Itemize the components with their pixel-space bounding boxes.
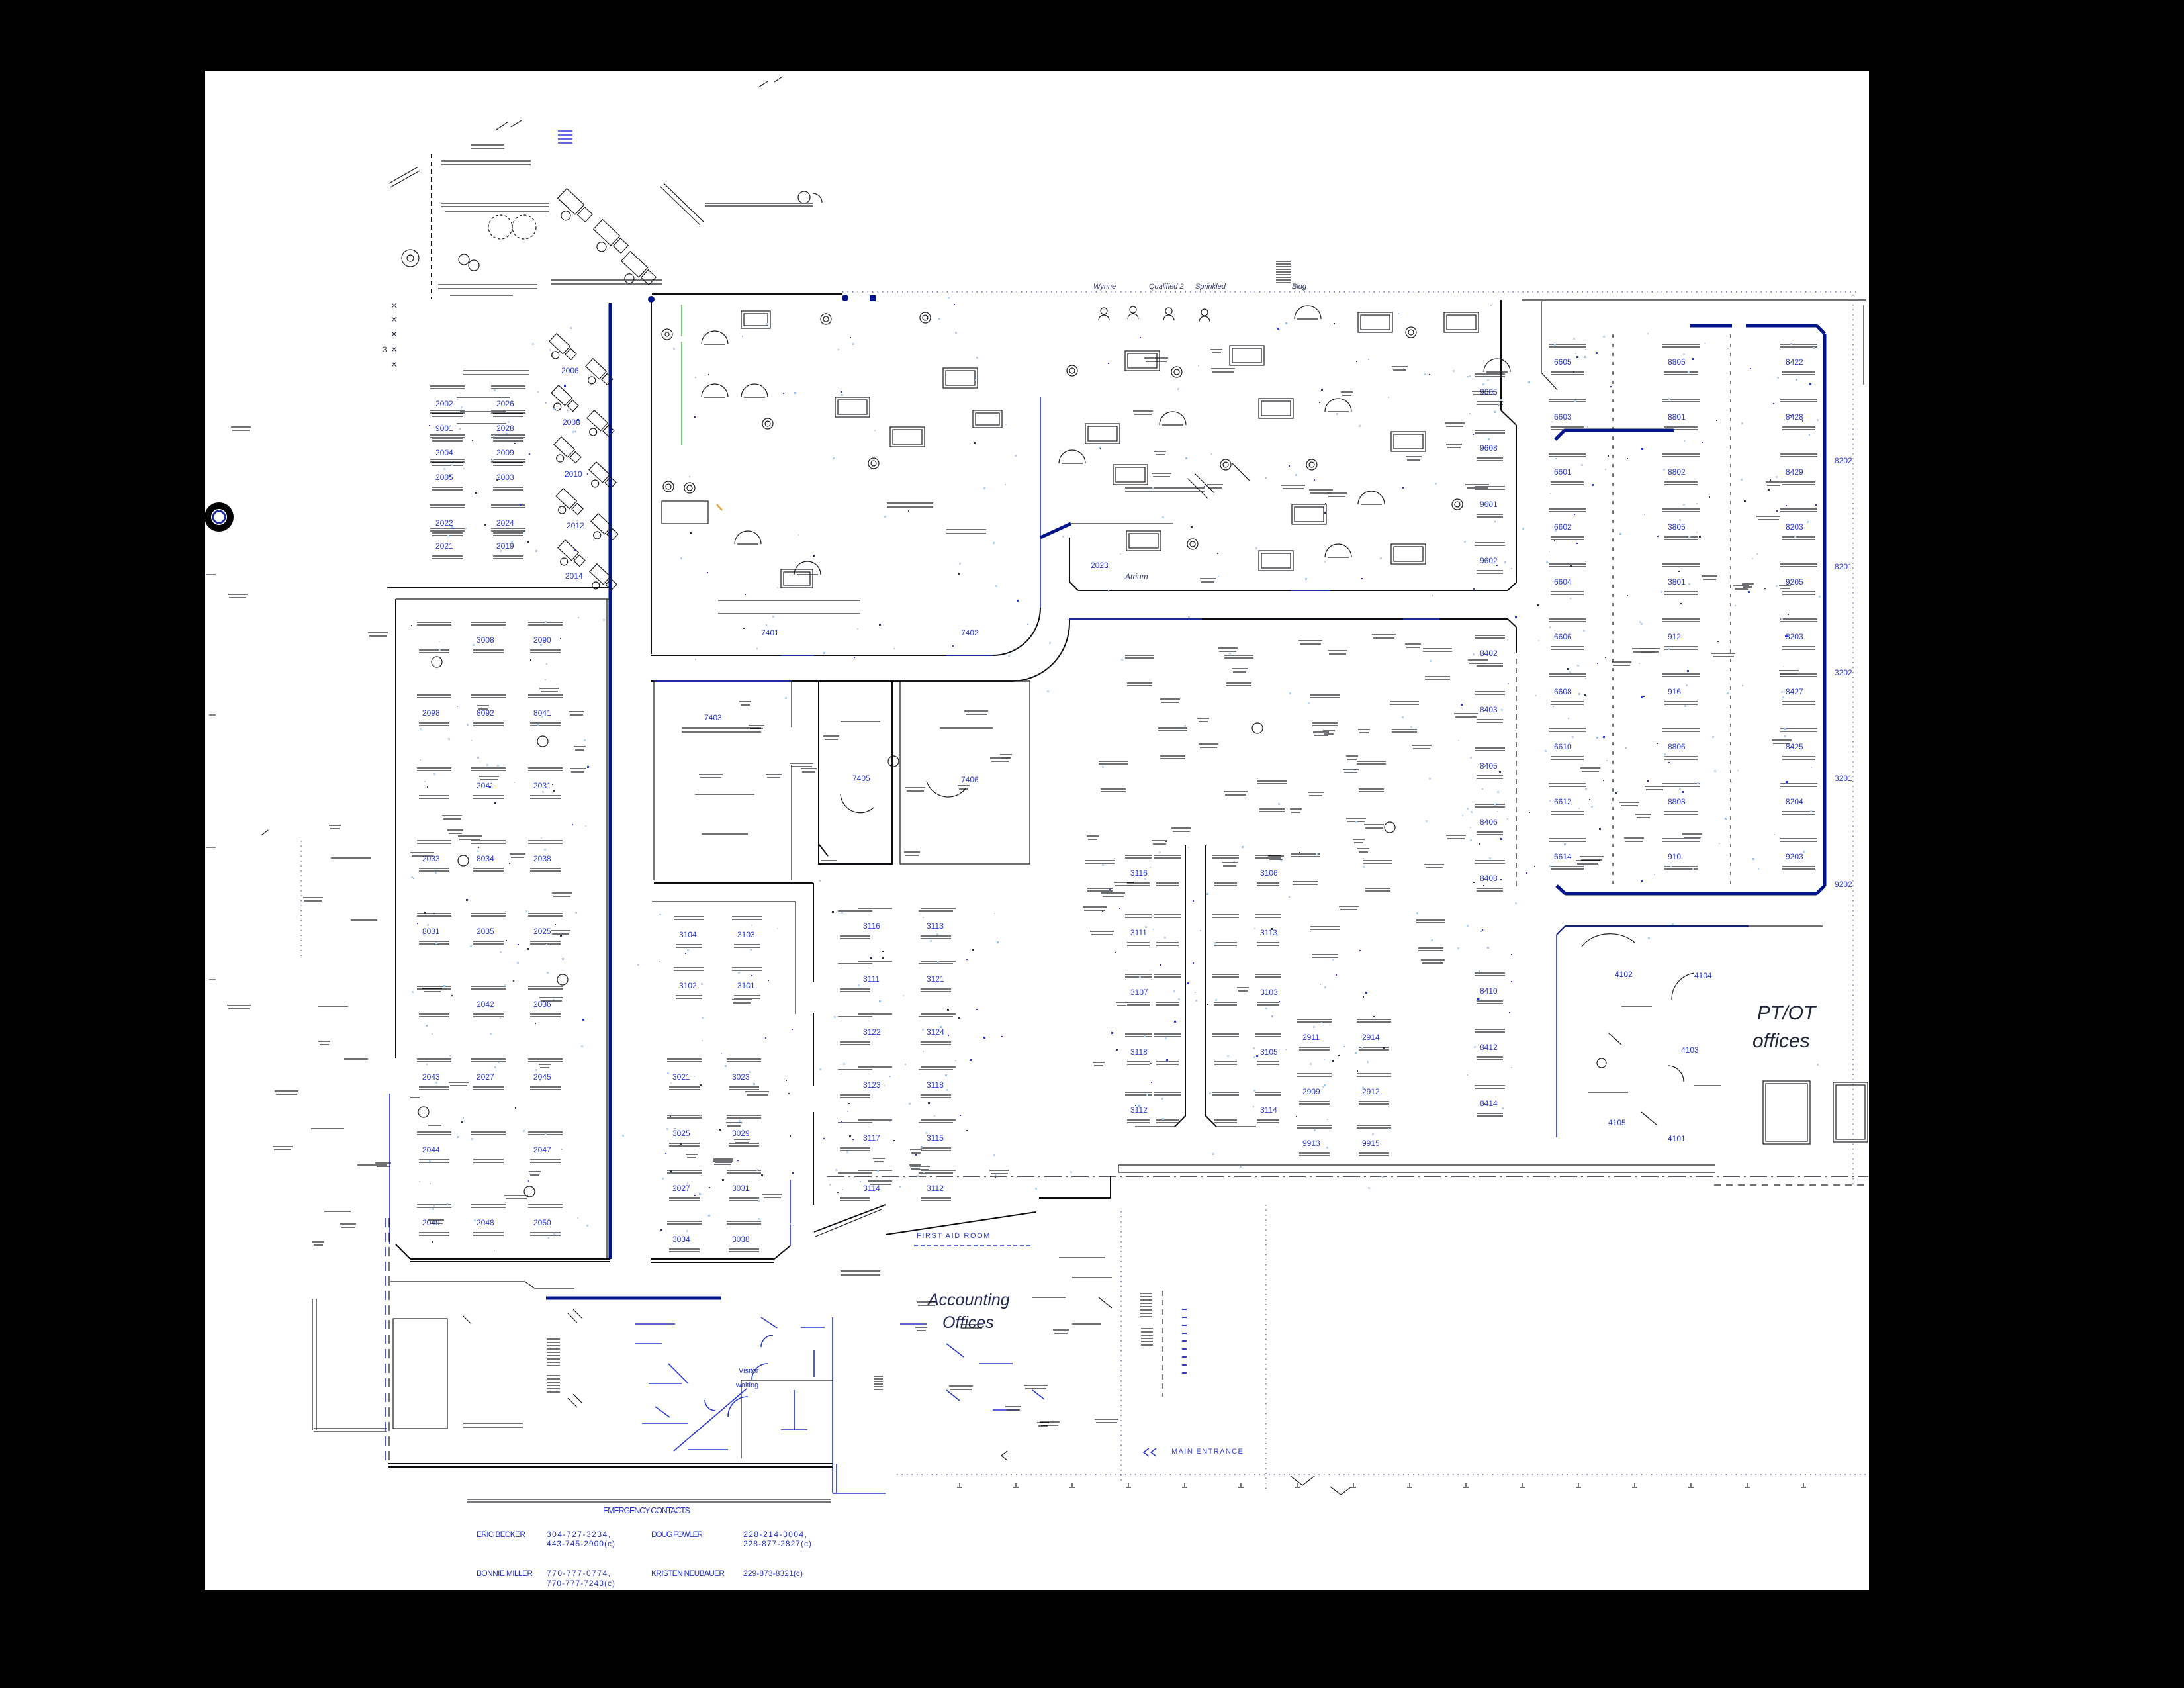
svg-text:FIRST AID ROOM: FIRST AID ROOM xyxy=(917,1232,991,1240)
svg-text:EMERGENCY CONTACTS: EMERGENCY CONTACTS xyxy=(603,1506,690,1515)
svg-text:443-745-2900(c): 443-745-2900(c) xyxy=(547,1539,615,1548)
svg-text:2004: 2004 xyxy=(435,448,453,457)
svg-text:3021: 3021 xyxy=(672,1072,690,1082)
svg-text:2912: 2912 xyxy=(1362,1087,1380,1096)
svg-text:3031: 3031 xyxy=(732,1184,750,1193)
svg-text:Sprinkled: Sprinkled xyxy=(1195,283,1226,291)
svg-text:3105: 3105 xyxy=(1260,1047,1278,1056)
svg-text:PT/OT: PT/OT xyxy=(1757,1002,1817,1024)
svg-text:ERIC BECKER: ERIC BECKER xyxy=(477,1530,525,1539)
svg-text:2043: 2043 xyxy=(422,1072,440,1082)
svg-text:3116: 3116 xyxy=(1130,868,1148,878)
svg-text:6608: 6608 xyxy=(1554,687,1572,696)
svg-text:3202: 3202 xyxy=(1835,668,1852,677)
svg-text:3112: 3112 xyxy=(1130,1105,1148,1115)
svg-text:6601: 6601 xyxy=(1554,467,1572,477)
svg-text:Visitor: Visitor xyxy=(739,1367,759,1375)
svg-text:3116: 3116 xyxy=(863,921,880,931)
svg-text:waiting: waiting xyxy=(735,1382,758,1389)
svg-text:2041: 2041 xyxy=(477,781,494,790)
svg-text:8406: 8406 xyxy=(1480,818,1498,827)
svg-text:8203: 8203 xyxy=(1786,522,1803,532)
svg-text:2038: 2038 xyxy=(533,854,551,863)
svg-text:3023: 3023 xyxy=(732,1072,750,1082)
svg-text:912: 912 xyxy=(1668,632,1681,641)
svg-text:3124: 3124 xyxy=(927,1027,944,1037)
svg-text:2035: 2035 xyxy=(477,927,494,936)
svg-text:8806: 8806 xyxy=(1668,742,1686,751)
svg-text:2090: 2090 xyxy=(533,635,551,645)
svg-text:2019: 2019 xyxy=(496,541,514,551)
svg-text:3008: 3008 xyxy=(477,635,494,645)
svg-text:3118: 3118 xyxy=(927,1080,944,1090)
svg-text:3121: 3121 xyxy=(927,974,944,984)
svg-text:3103: 3103 xyxy=(1260,988,1278,997)
svg-text:8805: 8805 xyxy=(1668,357,1686,367)
svg-text:9602: 9602 xyxy=(1480,556,1498,565)
svg-text:3117: 3117 xyxy=(863,1133,880,1143)
svg-text:2009: 2009 xyxy=(496,448,514,457)
svg-text:2048: 2048 xyxy=(477,1218,494,1227)
svg-text:3103: 3103 xyxy=(737,930,755,939)
svg-text:8801: 8801 xyxy=(1668,412,1686,422)
svg-text:9608: 9608 xyxy=(1480,444,1498,453)
svg-text:8201: 8201 xyxy=(1835,562,1852,571)
svg-text:3123: 3123 xyxy=(863,1080,881,1090)
svg-text:6612: 6612 xyxy=(1554,797,1572,806)
svg-text:9001: 9001 xyxy=(435,424,453,433)
svg-text:2047: 2047 xyxy=(533,1145,551,1154)
svg-text:3805: 3805 xyxy=(1668,522,1686,532)
svg-text:2024: 2024 xyxy=(496,518,514,528)
svg-text:304-727-3234,: 304-727-3234, xyxy=(547,1530,610,1539)
svg-text:3111: 3111 xyxy=(1130,928,1147,937)
svg-text:7403: 7403 xyxy=(704,713,722,722)
svg-text:8412: 8412 xyxy=(1480,1043,1498,1052)
svg-text:9605: 9605 xyxy=(1480,387,1498,397)
svg-text:3114: 3114 xyxy=(1260,1105,1277,1115)
svg-text:Wynne: Wynne xyxy=(1093,283,1116,291)
svg-text:2027: 2027 xyxy=(672,1184,690,1193)
svg-text:770-777-7243(c): 770-777-7243(c) xyxy=(547,1579,615,1588)
svg-text:2033: 2033 xyxy=(422,854,440,863)
svg-text:2003: 2003 xyxy=(496,473,514,482)
svg-text:8422: 8422 xyxy=(1786,357,1803,367)
svg-text:9915: 9915 xyxy=(1362,1139,1380,1148)
svg-text:3029: 3029 xyxy=(732,1129,750,1138)
svg-text:2023: 2023 xyxy=(1091,561,1109,570)
svg-text:2049: 2049 xyxy=(422,1218,440,1227)
svg-text:4101: 4101 xyxy=(1668,1134,1686,1143)
svg-text:7405: 7405 xyxy=(852,774,870,783)
svg-text:8808: 8808 xyxy=(1668,797,1686,806)
svg-text:6605: 6605 xyxy=(1554,357,1572,367)
svg-text:9202: 9202 xyxy=(1835,880,1852,889)
svg-text:228-214-3004,: 228-214-3004, xyxy=(743,1530,807,1539)
svg-text:6603: 6603 xyxy=(1554,412,1572,422)
svg-text:offices: offices xyxy=(1752,1030,1810,1052)
svg-text:6604: 6604 xyxy=(1554,577,1572,586)
svg-text:3113: 3113 xyxy=(927,921,944,931)
svg-text:2002: 2002 xyxy=(435,399,453,408)
svg-text:3112: 3112 xyxy=(927,1184,944,1193)
svg-text:8428: 8428 xyxy=(1786,412,1803,422)
svg-text:3102: 3102 xyxy=(679,981,697,990)
svg-text:2914: 2914 xyxy=(1362,1033,1380,1042)
svg-text:4105: 4105 xyxy=(1608,1118,1626,1127)
svg-text:8405: 8405 xyxy=(1480,761,1498,771)
svg-text:3113: 3113 xyxy=(1260,928,1277,937)
svg-text:3025: 3025 xyxy=(672,1129,690,1138)
svg-text:2031: 2031 xyxy=(533,781,551,790)
svg-text:2042: 2042 xyxy=(477,1000,494,1009)
svg-text:8202: 8202 xyxy=(1835,456,1852,465)
svg-text:8034: 8034 xyxy=(477,854,494,863)
svg-text:2027: 2027 xyxy=(477,1072,494,1082)
svg-text:8031: 8031 xyxy=(422,927,440,936)
svg-text:8429: 8429 xyxy=(1786,467,1803,477)
svg-text:2006: 2006 xyxy=(561,366,579,375)
svg-text:8403: 8403 xyxy=(1480,705,1498,714)
svg-text:2098: 2098 xyxy=(422,708,440,718)
svg-text:2021: 2021 xyxy=(435,541,453,551)
svg-text:8427: 8427 xyxy=(1786,687,1803,696)
svg-text:7406: 7406 xyxy=(961,775,979,784)
svg-text:BONNIE MILLER: BONNIE MILLER xyxy=(477,1569,533,1578)
svg-text:DOUG FOWLER: DOUG FOWLER xyxy=(651,1530,703,1539)
svg-text:6614: 6614 xyxy=(1554,852,1572,861)
svg-text:228-877-2827(c): 228-877-2827(c) xyxy=(743,1539,811,1548)
svg-text:6606: 6606 xyxy=(1554,632,1572,641)
svg-text:4102: 4102 xyxy=(1615,970,1633,979)
svg-text:2911: 2911 xyxy=(1302,1033,1320,1042)
svg-text:2045: 2045 xyxy=(533,1072,551,1082)
svg-text:8414: 8414 xyxy=(1480,1099,1498,1108)
svg-text:4104: 4104 xyxy=(1694,971,1712,980)
svg-text:2012: 2012 xyxy=(567,521,584,530)
svg-text:3122: 3122 xyxy=(863,1027,881,1037)
svg-text:3111: 3111 xyxy=(863,974,880,984)
svg-text:KRISTEN NEUBAUER: KRISTEN NEUBAUER xyxy=(651,1569,725,1578)
svg-text:2028: 2028 xyxy=(496,424,514,433)
svg-text:3201: 3201 xyxy=(1835,774,1852,783)
svg-text:9913: 9913 xyxy=(1302,1139,1320,1148)
svg-text:2014: 2014 xyxy=(565,571,583,581)
svg-text:2010: 2010 xyxy=(565,469,582,479)
svg-text:2050: 2050 xyxy=(533,1218,551,1227)
svg-text:8410: 8410 xyxy=(1480,986,1498,996)
svg-text:7401: 7401 xyxy=(761,628,779,637)
svg-text:6610: 6610 xyxy=(1554,742,1572,751)
svg-text:9601: 9601 xyxy=(1480,500,1498,509)
svg-text:229-873-8321(c): 229-873-8321(c) xyxy=(743,1569,803,1578)
svg-text:7402: 7402 xyxy=(961,628,979,637)
svg-text:8204: 8204 xyxy=(1786,797,1803,806)
svg-text:3034: 3034 xyxy=(672,1235,690,1244)
svg-text:770-777-0774,: 770-777-0774, xyxy=(547,1569,610,1578)
svg-text:MAIN ENTRANCE: MAIN ENTRANCE xyxy=(1171,1448,1244,1456)
svg-text:4103: 4103 xyxy=(1681,1045,1699,1055)
svg-text:2022: 2022 xyxy=(435,518,453,528)
svg-text:8408: 8408 xyxy=(1480,874,1498,883)
svg-text:910: 910 xyxy=(1668,852,1681,861)
svg-text:3038: 3038 xyxy=(732,1235,750,1244)
svg-text:3118: 3118 xyxy=(1130,1047,1148,1056)
svg-text:3801: 3801 xyxy=(1668,577,1686,586)
svg-text:3203: 3203 xyxy=(1786,632,1803,641)
svg-text:3106: 3106 xyxy=(1260,868,1278,878)
svg-text:2909: 2909 xyxy=(1302,1087,1320,1096)
svg-text:3104: 3104 xyxy=(679,930,697,939)
svg-text:2044: 2044 xyxy=(422,1145,440,1154)
svg-text:Qualified 2: Qualified 2 xyxy=(1149,283,1184,291)
svg-text:Bldg: Bldg xyxy=(1292,283,1307,291)
svg-text:3114: 3114 xyxy=(863,1184,880,1193)
svg-text:3: 3 xyxy=(383,345,387,354)
svg-text:8402: 8402 xyxy=(1480,649,1498,658)
svg-text:3115: 3115 xyxy=(927,1133,944,1143)
svg-text:Offices: Offices xyxy=(942,1313,994,1332)
svg-text:Accounting: Accounting xyxy=(927,1291,1010,1309)
svg-text:3107: 3107 xyxy=(1130,988,1148,997)
svg-text:8092: 8092 xyxy=(477,708,494,718)
svg-text:9203: 9203 xyxy=(1786,852,1803,861)
svg-text:2025: 2025 xyxy=(533,927,551,936)
svg-text:8802: 8802 xyxy=(1668,467,1686,477)
svg-text:2026: 2026 xyxy=(496,399,514,408)
svg-text:916: 916 xyxy=(1668,687,1681,696)
